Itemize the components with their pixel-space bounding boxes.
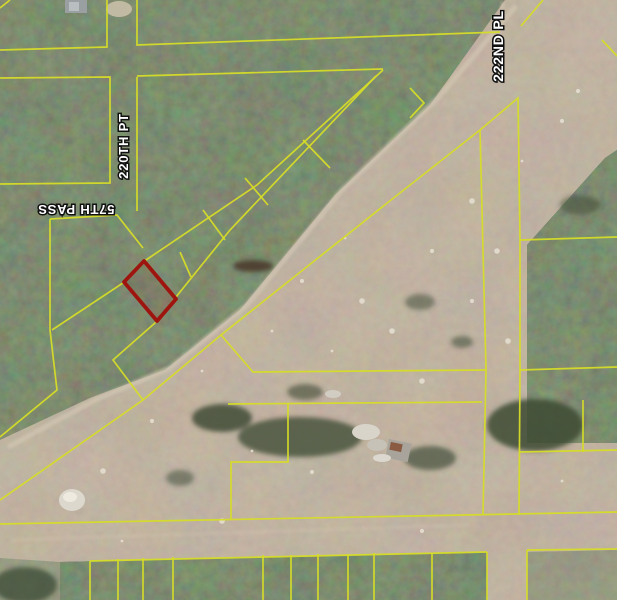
parcel-line bbox=[519, 370, 520, 515]
dirt-speck bbox=[300, 279, 304, 283]
dirt-speck bbox=[494, 248, 500, 254]
dirt-speck bbox=[430, 249, 434, 253]
dirt-speck bbox=[271, 330, 274, 333]
dirt-speck bbox=[560, 119, 564, 123]
dirt-speck bbox=[201, 370, 204, 373]
aerial-map-view[interactable]: 220TH PT57TH PASS222ND PL bbox=[0, 0, 617, 600]
dirt-speck bbox=[521, 160, 524, 163]
dirt-speck bbox=[100, 468, 106, 474]
dirt-speck bbox=[150, 419, 154, 423]
dirt-speck bbox=[576, 89, 580, 93]
dirt-speck bbox=[470, 299, 474, 303]
dirt-speck bbox=[310, 470, 314, 474]
street-label: 222ND PL bbox=[490, 10, 506, 82]
dirt-speck bbox=[121, 540, 124, 543]
dirt-speck bbox=[419, 378, 425, 384]
dirt-speck bbox=[359, 298, 365, 304]
dirt-speck bbox=[561, 480, 564, 483]
dirt-speck bbox=[251, 450, 254, 453]
dirt-speck bbox=[420, 529, 424, 533]
street-label: 57TH PASS bbox=[37, 202, 114, 217]
street-label: 220TH PT bbox=[116, 113, 131, 179]
map-canvas[interactable]: 220TH PT57TH PASS222ND PL bbox=[0, 0, 617, 600]
dirt-speck bbox=[505, 338, 511, 344]
dirt-speck bbox=[389, 328, 395, 334]
parcel-line bbox=[527, 549, 617, 550]
dirt-speck bbox=[469, 198, 475, 204]
dirt-speck bbox=[331, 350, 334, 353]
